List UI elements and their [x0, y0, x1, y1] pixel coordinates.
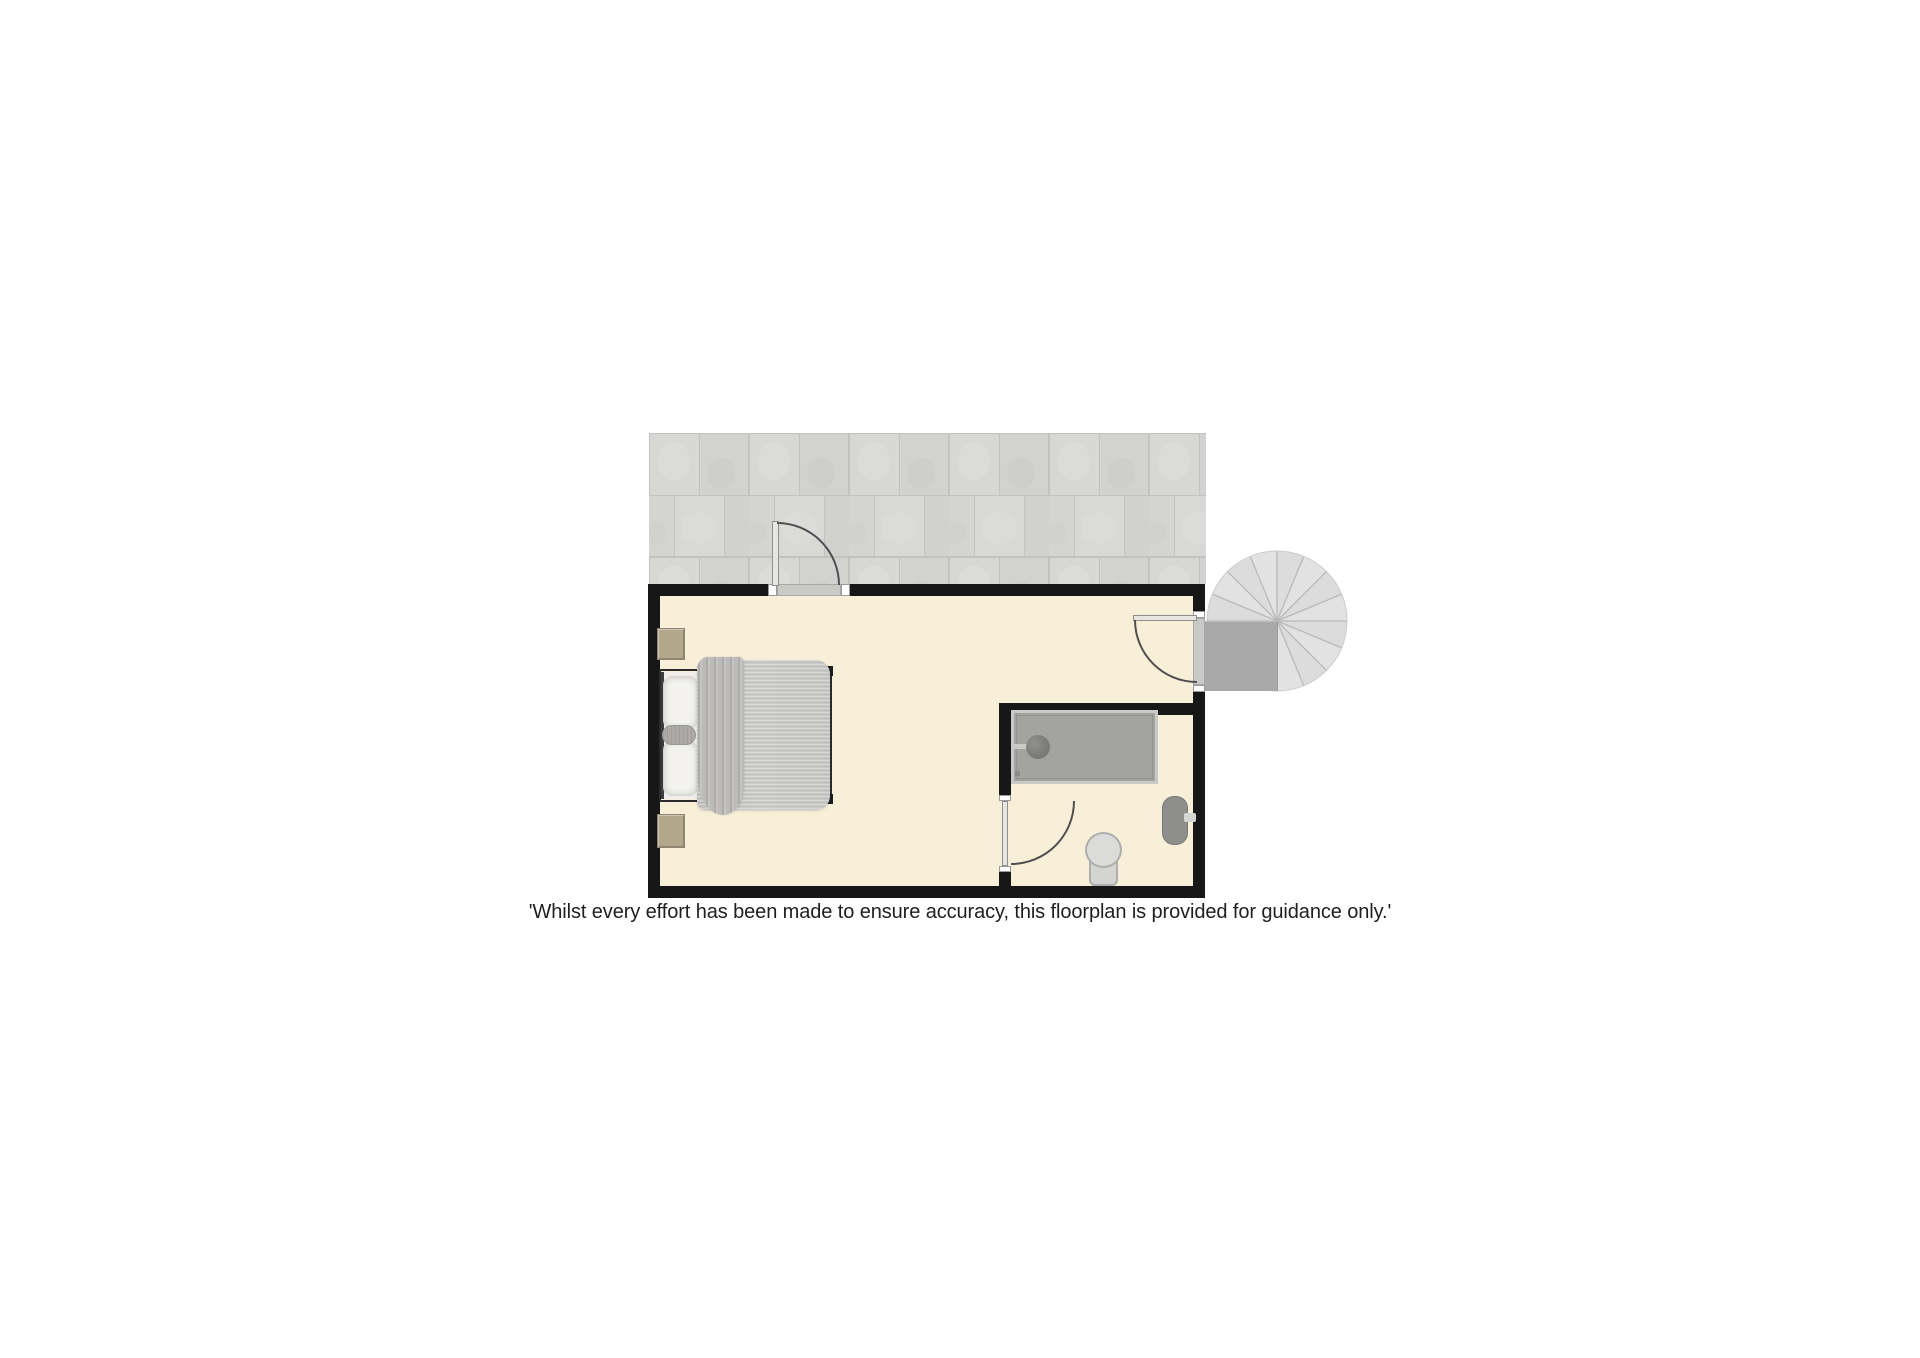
bolster-cushion: [662, 725, 696, 745]
nightstand-top: [657, 628, 685, 660]
shower-head: [1026, 735, 1050, 759]
floorplan-canvas: 'Whilst every effort has been made to en…: [0, 0, 1920, 1358]
shower-drain: [1015, 771, 1020, 776]
throw-drape: [698, 657, 743, 815]
toilet-bowl: [1085, 832, 1122, 868]
pillow-bottom: [663, 741, 698, 796]
pillow-top: [663, 676, 698, 729]
bathroom-wall-left-stub: [999, 872, 1011, 886]
terrace-door-sill-right: [841, 584, 850, 596]
disclaimer-text: 'Whilst every effort has been made to en…: [0, 901, 1920, 924]
terrace-tiles: [649, 433, 1206, 584]
landing-door-sill-bottom: [1193, 685, 1205, 692]
radiator-valve: [1184, 813, 1196, 822]
bathroom-door-sill-bottom: [999, 866, 1011, 872]
bathroom-wall-left-upper: [999, 703, 1011, 795]
stair-landing: [1205, 621, 1278, 691]
nightstand-bottom: [657, 814, 685, 848]
bathroom-door-leaf: [1002, 801, 1008, 866]
terrace-door-threshold: [777, 584, 841, 596]
